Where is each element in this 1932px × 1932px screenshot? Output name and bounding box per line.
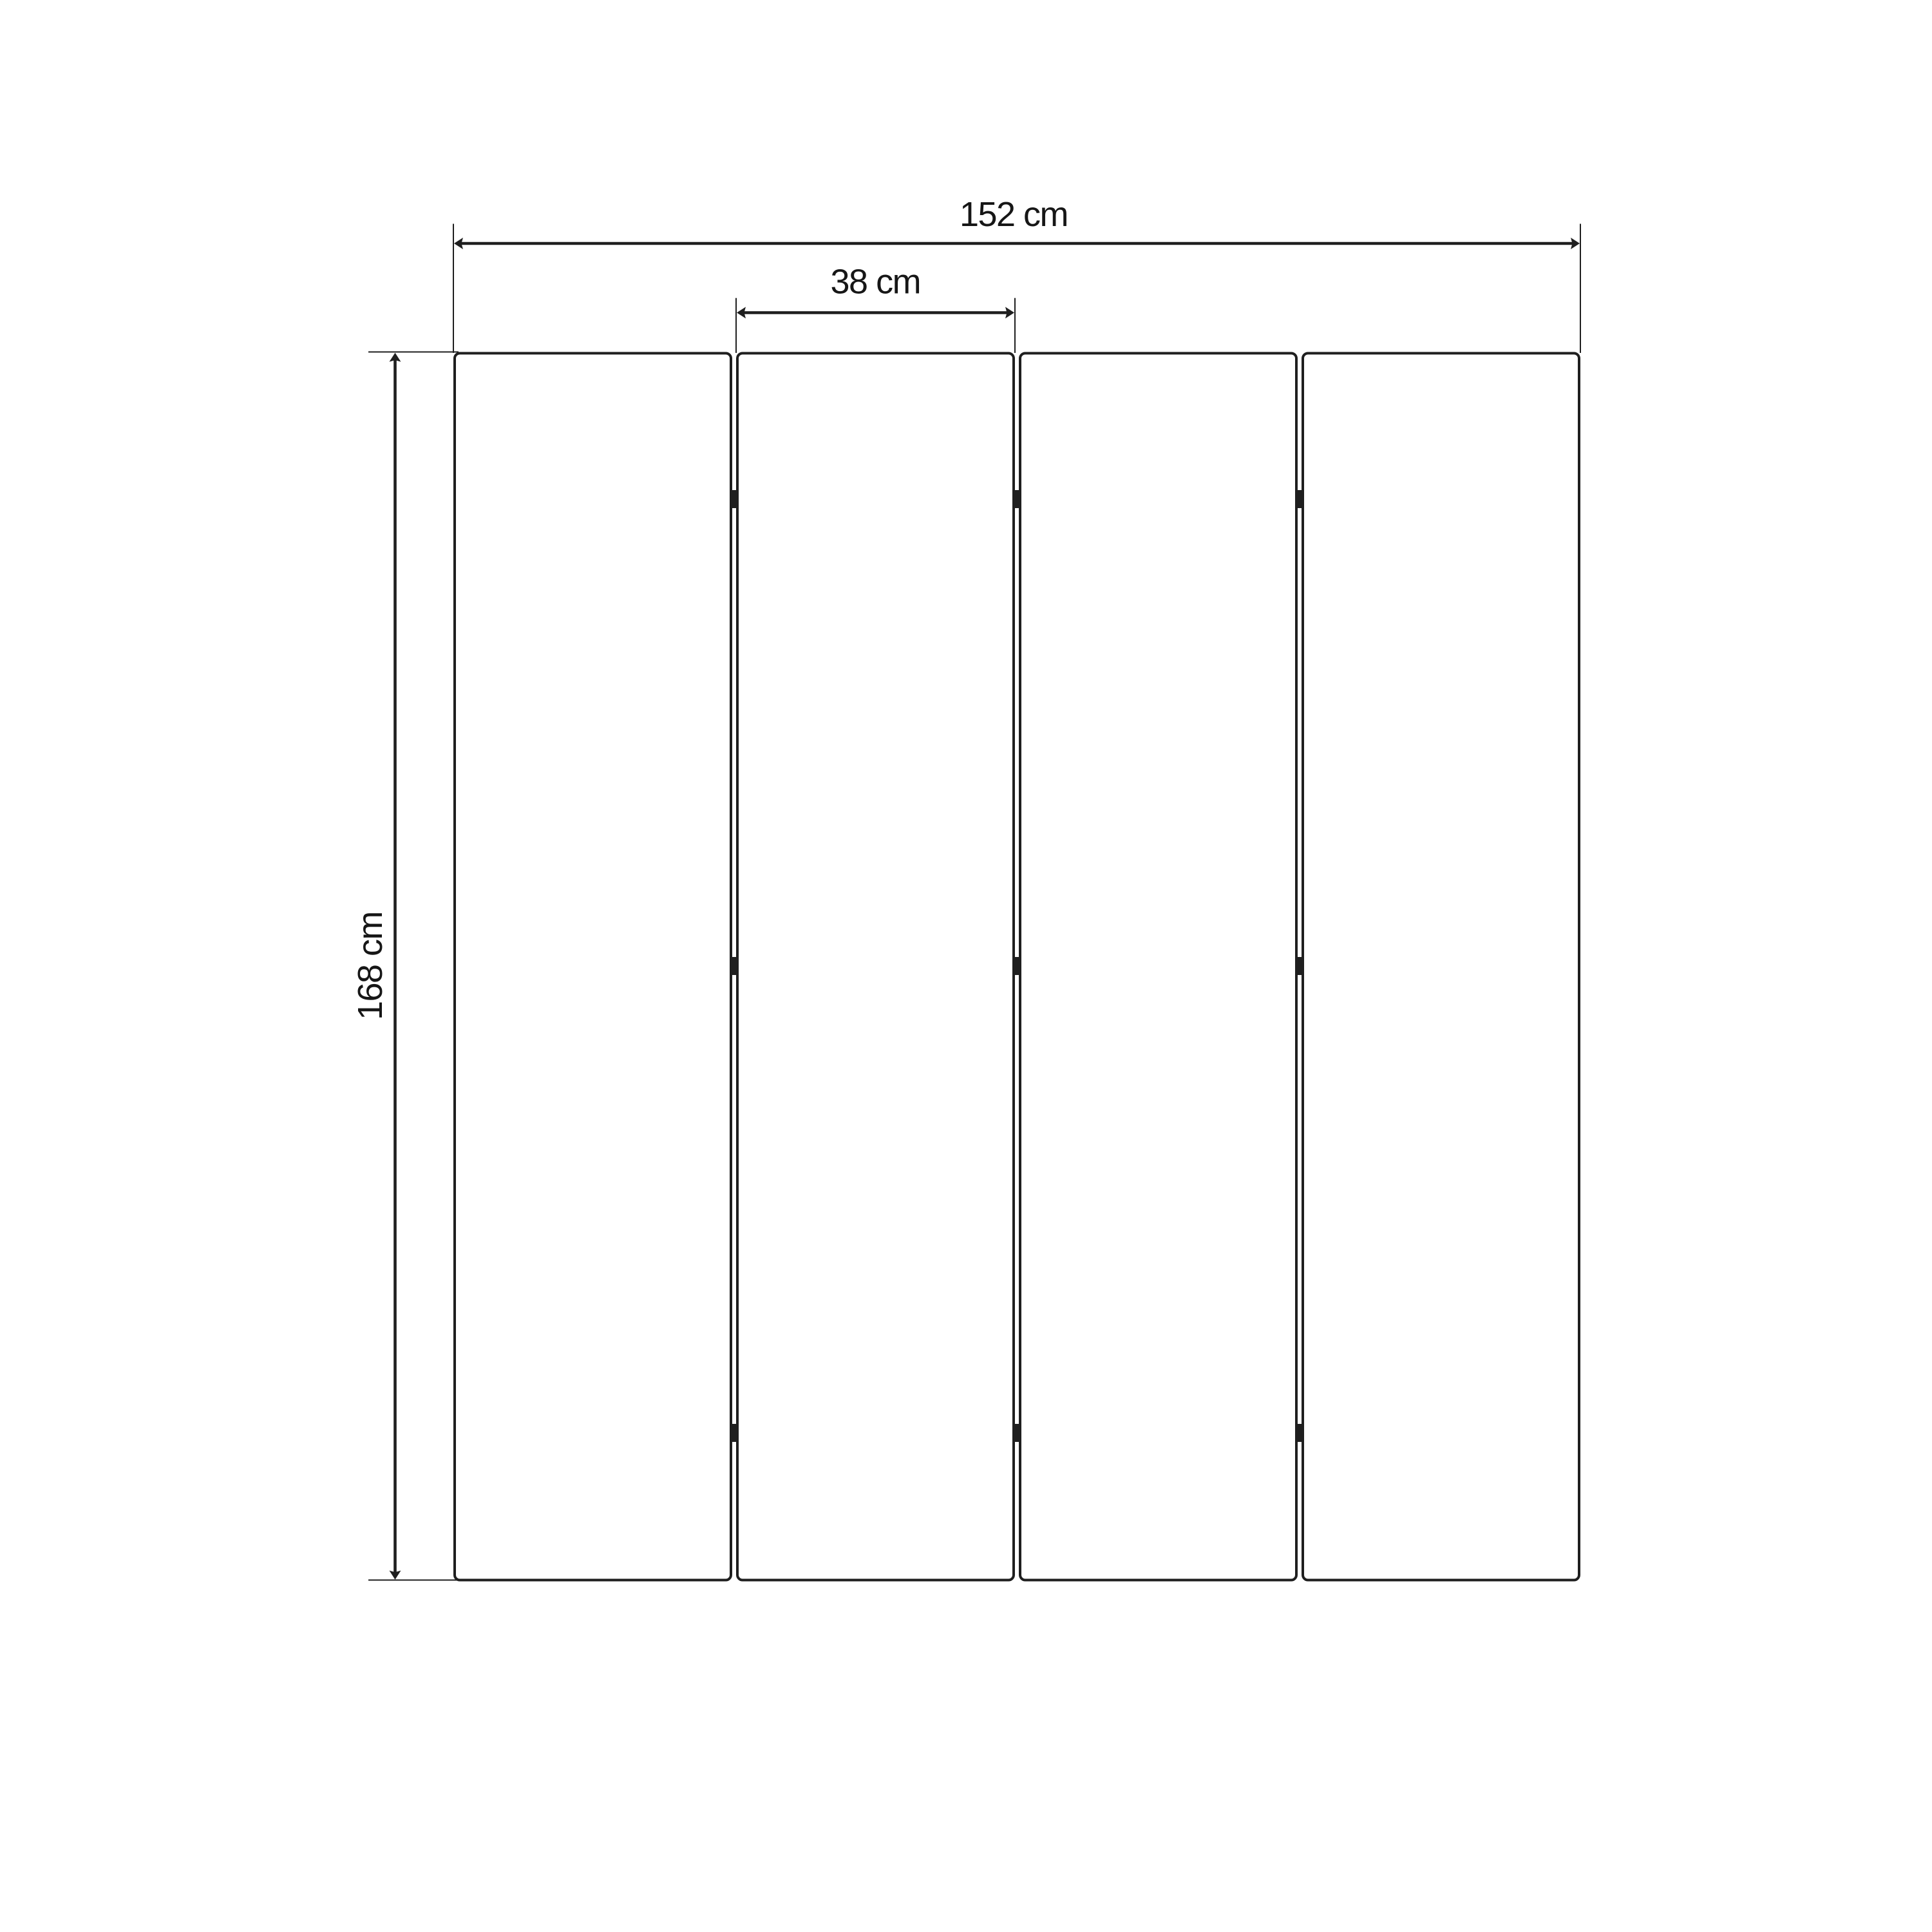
svg-text:38 cm: 38 cm: [831, 263, 921, 301]
svg-text:168 cm: 168 cm: [351, 912, 390, 1020]
svg-text:152 cm: 152 cm: [960, 195, 1068, 234]
